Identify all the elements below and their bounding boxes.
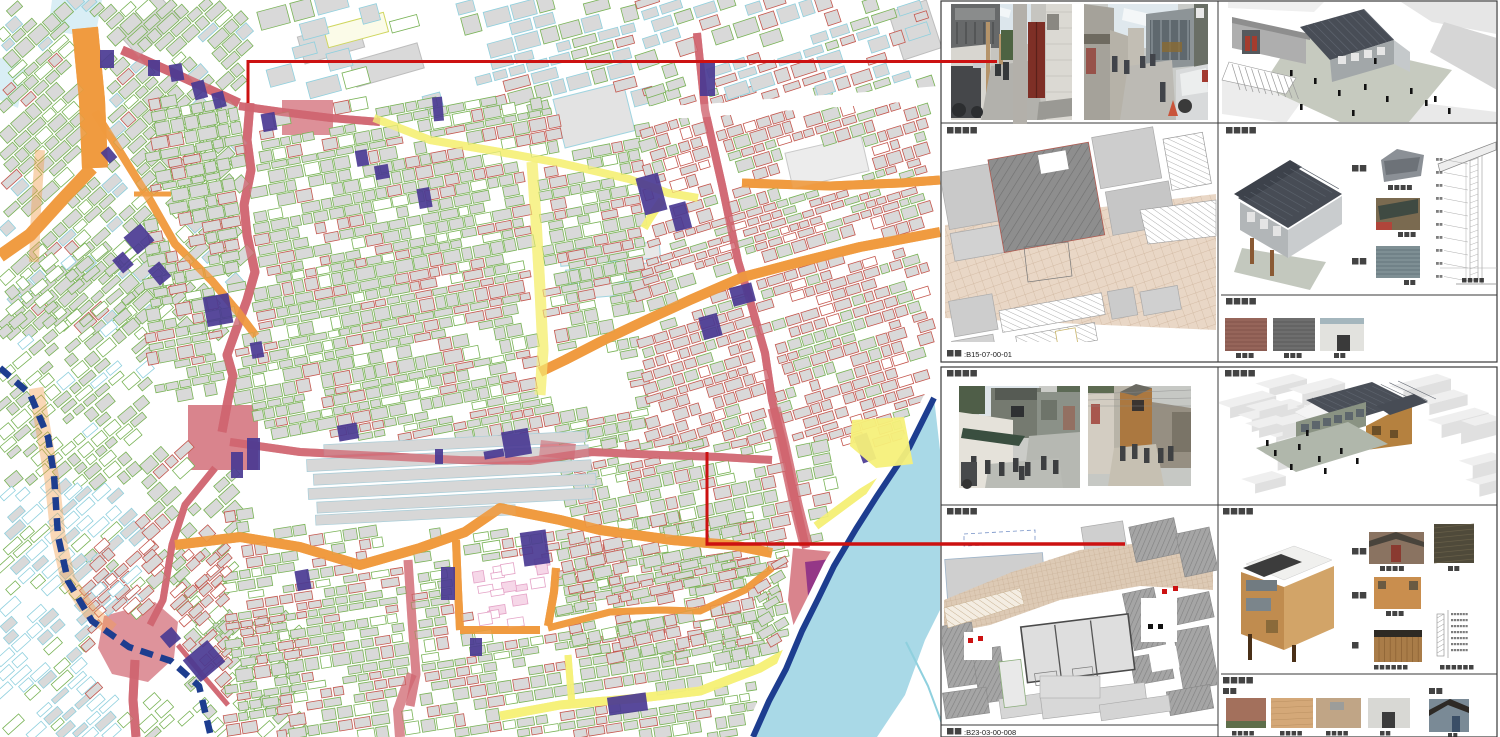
svg-text::B15-07-00-01: :B15-07-00-01 <box>964 350 1012 359</box>
svg-text::B23-03-00-008: :B23-03-00-008 <box>964 728 1016 737</box>
